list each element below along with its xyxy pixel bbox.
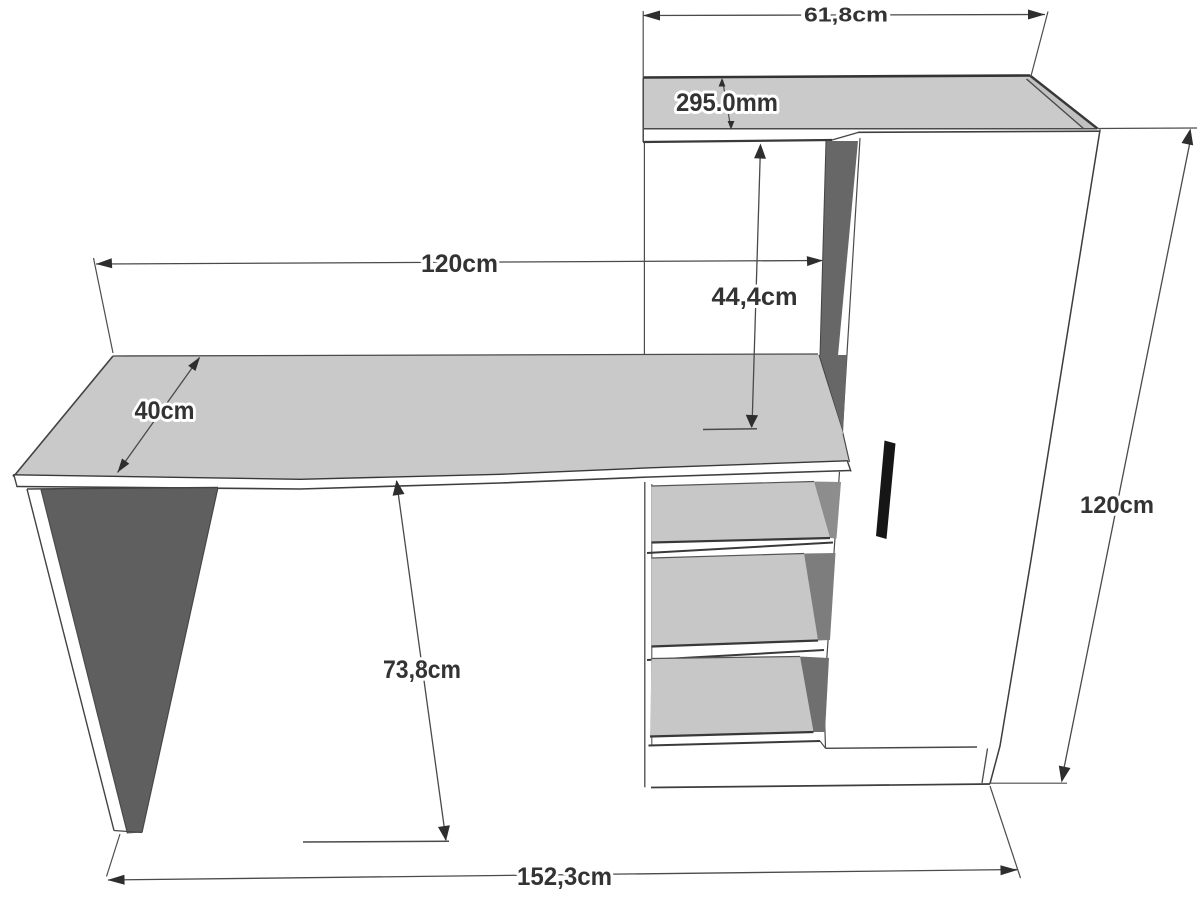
svg-text:73,8cm: 73,8cm bbox=[383, 656, 461, 684]
svg-text:61,8cm: 61,8cm bbox=[804, 5, 888, 27]
svg-text:44,4cm: 44,4cm bbox=[712, 283, 798, 311]
svg-text:295.0mm: 295.0mm bbox=[676, 89, 778, 117]
svg-text:120cm: 120cm bbox=[1080, 492, 1154, 519]
svg-text:40cm: 40cm bbox=[135, 397, 195, 425]
svg-text:152,3cm: 152,3cm bbox=[517, 863, 612, 891]
svg-text:120cm: 120cm bbox=[421, 250, 498, 278]
